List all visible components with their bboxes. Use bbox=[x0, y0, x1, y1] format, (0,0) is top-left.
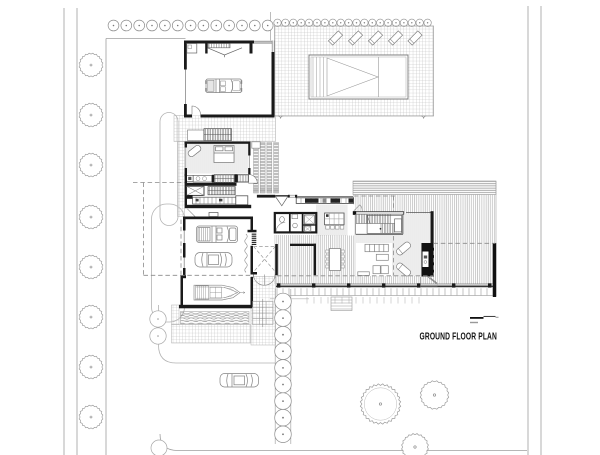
svg-text:GROUND FLOOR PLAN: GROUND FLOOR PLAN bbox=[420, 331, 498, 342]
